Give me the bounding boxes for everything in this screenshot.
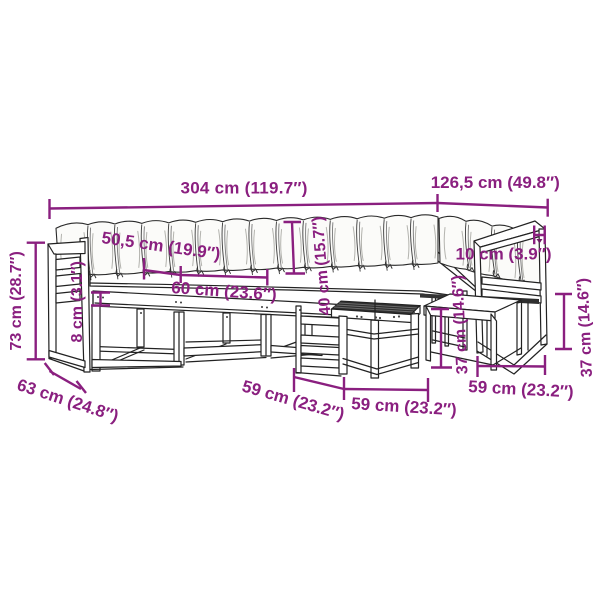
svg-text:126,5 cm (49.8″): 126,5 cm (49.8″) [431, 173, 560, 192]
svg-text:59 cm (23.2″): 59 cm (23.2″) [351, 394, 457, 419]
svg-text:304 cm (119.7″): 304 cm (119.7″) [181, 179, 308, 198]
svg-text:59 cm (23.2″): 59 cm (23.2″) [468, 377, 574, 401]
svg-text:8 cm (3.1″): 8 cm (3.1″) [69, 261, 86, 342]
svg-text:73 cm (28.7″): 73 cm (28.7″) [8, 251, 25, 350]
svg-text:10 cm (3.9″): 10 cm (3.9″) [456, 245, 552, 264]
svg-text:37 cm (14.6″): 37 cm (14.6″) [575, 278, 596, 378]
